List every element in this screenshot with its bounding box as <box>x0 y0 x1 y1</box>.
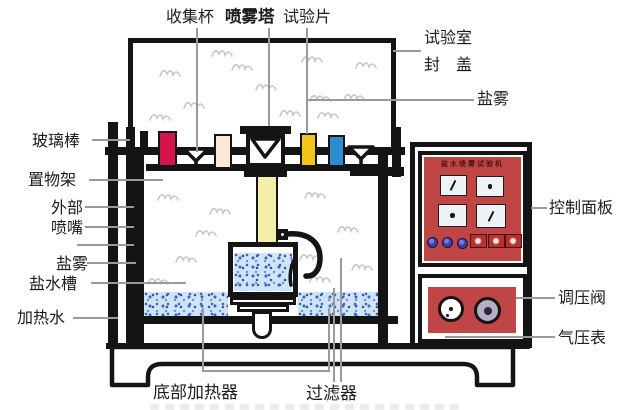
label-control-panel: 控制面板 <box>549 199 613 218</box>
leader-heater-right <box>328 308 330 372</box>
label-air-pressure-gauge: 气压表 <box>558 329 606 348</box>
spray-tower-nozzle-funnel <box>252 139 279 157</box>
leader-external-2 <box>85 226 134 228</box>
leader-air-pressure-gauge <box>445 336 555 338</box>
label-heated-water: 加热水 <box>17 309 65 328</box>
label-shelf: 置物架 <box>28 171 76 190</box>
cutoff-caption <box>150 404 460 410</box>
label-chamber-lid: 封 盖 <box>424 56 472 75</box>
collector-funnel-right <box>349 147 373 159</box>
leader-external-1 <box>85 206 134 208</box>
label-nozzle: 喷嘴 <box>51 219 83 238</box>
leader-pressure-regulator <box>516 297 555 299</box>
machine-base-plinth <box>112 347 513 385</box>
label-salt-fog-right: 盐雾 <box>477 90 509 109</box>
leader-control-panel <box>531 207 547 209</box>
cup-inner-pipe <box>290 258 295 285</box>
label-salt-water-tank: 盐水槽 <box>29 275 77 294</box>
label-spray-tower: 喷雾塔 <box>225 7 275 26</box>
label-test-chamber: 试验室 <box>424 29 472 48</box>
label-glass-rod: 玻璃棒 <box>32 132 80 151</box>
label-collector-cup: 收集杯 <box>166 8 214 27</box>
label-salt-fog-left: 盐雾 <box>56 255 88 274</box>
leader-salt-water-tank <box>91 282 186 284</box>
leader-test-piece <box>306 28 308 134</box>
leader-external-3 <box>77 244 134 246</box>
leader-salt-fog-right <box>306 99 474 101</box>
leader-glass-rod <box>92 139 130 141</box>
structure-lines <box>0 0 628 410</box>
leader-spray-tower <box>268 28 270 126</box>
label-filter: 过滤器 <box>306 384 357 403</box>
label-test-piece: 试验片 <box>283 8 331 27</box>
label-bottom-heater: 底部加热器 <box>153 383 238 402</box>
leader-filter-2 <box>340 258 342 382</box>
leader-heater-bracket <box>202 370 330 372</box>
label-external: 外部 <box>51 199 83 218</box>
leader-shelf <box>89 179 163 181</box>
salt-spray-tester-diagram: 盐水喷雾试验机 <box>0 0 628 410</box>
leader-filter-1 <box>333 288 335 382</box>
leader-heater-left <box>202 308 204 372</box>
leader-heated-water <box>73 317 118 319</box>
leader-collector-cup <box>196 28 198 152</box>
leader-salt-fog-left <box>87 262 136 264</box>
label-pressure-regulator: 调压阀 <box>558 289 606 308</box>
leader-chamber-lid <box>393 50 421 52</box>
